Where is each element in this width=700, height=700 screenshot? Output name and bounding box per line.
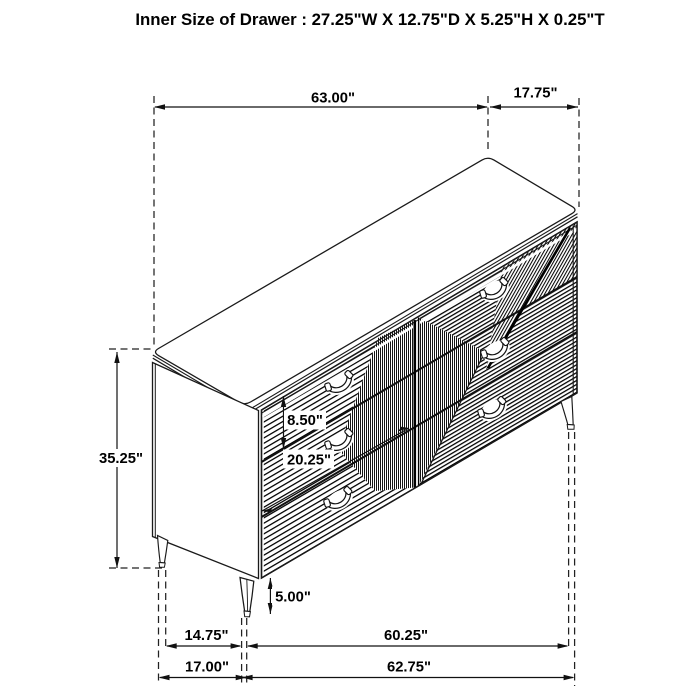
svg-text:14.75": 14.75" [184,628,228,644]
svg-text:60.25": 60.25" [384,628,428,644]
svg-text:35.25": 35.25" [99,451,143,467]
svg-text:5.00": 5.00" [275,590,311,606]
svg-text:8.50": 8.50" [287,413,323,429]
svg-text:20.25": 20.25" [287,453,331,469]
svg-text:17.00": 17.00" [185,660,229,676]
svg-text:17.75": 17.75" [513,86,557,102]
svg-text:63.00": 63.00" [311,91,355,107]
svg-text:62.75": 62.75" [387,660,431,676]
svg-text:Inner Size of Drawer : 27.25"W: Inner Size of Drawer : 27.25"W X 12.75"D… [135,10,605,29]
